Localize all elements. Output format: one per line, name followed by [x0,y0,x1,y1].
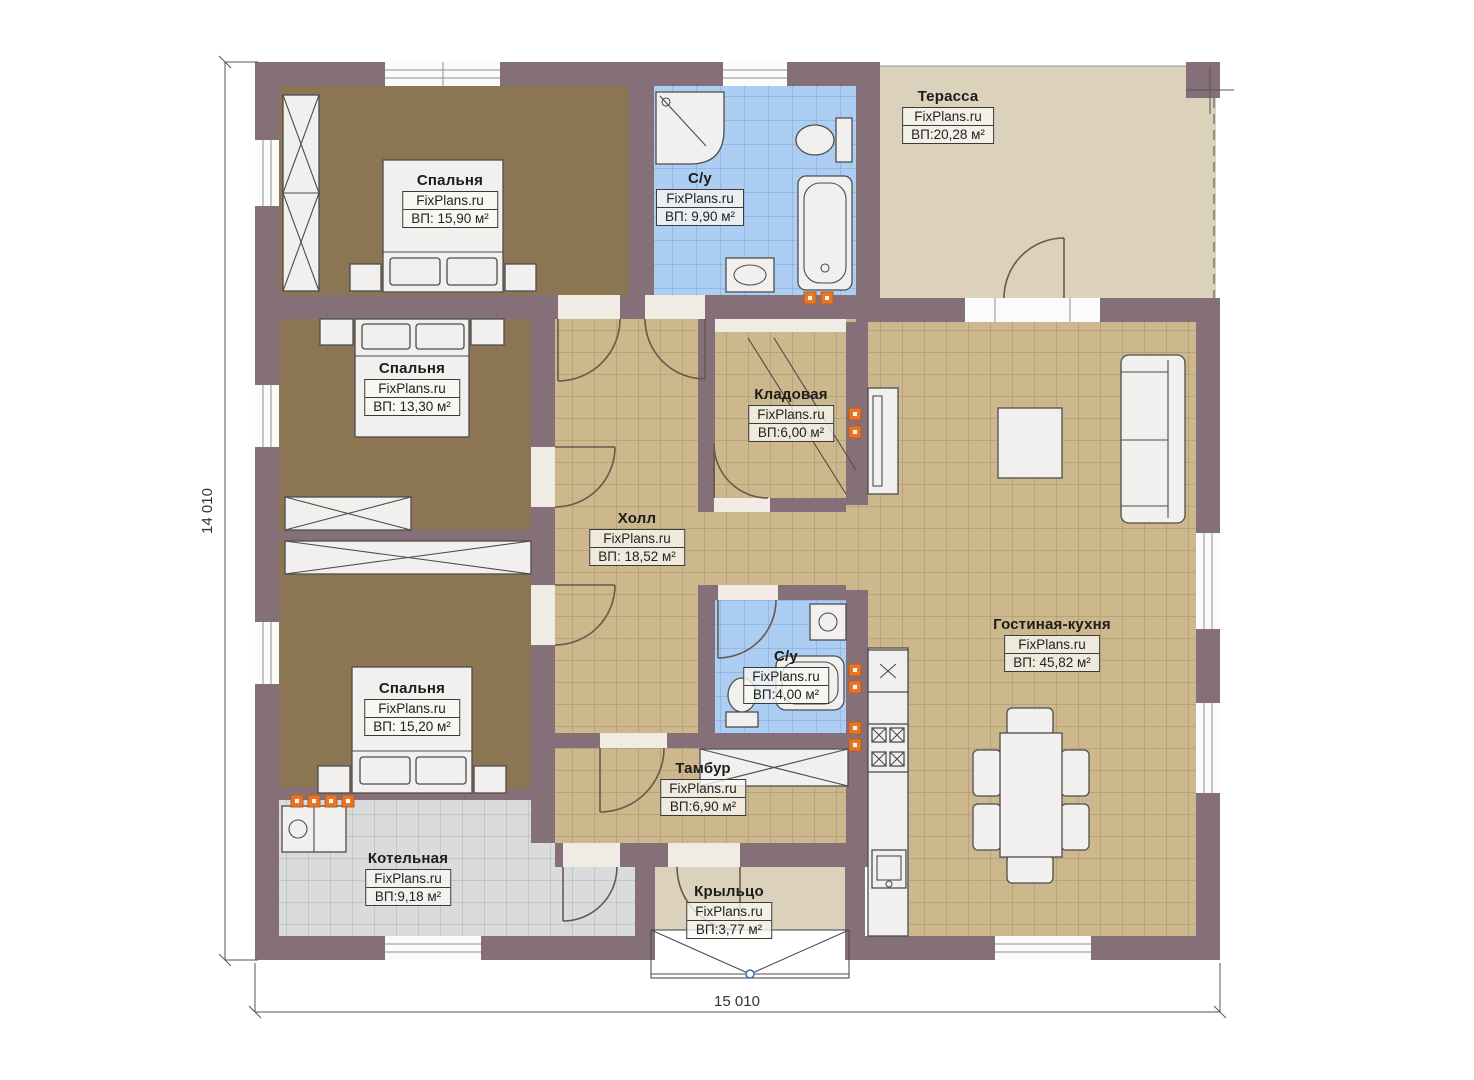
stove-icon [868,724,908,772]
room-area: ВП:3,77 м² [687,921,771,938]
room-name: Тамбур [660,760,746,777]
marker-icon [849,739,861,751]
room-area: ВП: 45,82 м² [1005,654,1099,671]
dimension-width-label: 15 010 [714,993,760,1010]
wall-pantry-left [698,319,715,512]
wardrobe-icon [285,497,411,530]
marker-icon [849,426,861,438]
window [255,622,279,684]
nightstand-icon [474,766,506,793]
room-name: Кладовая [748,386,834,403]
room-name: Спальня [402,172,498,189]
wall-porch-left [635,867,655,960]
window [723,62,787,86]
opening-bedroom1 [558,295,620,319]
sofa-icon [1121,355,1185,523]
room-area: ВП: 18,52 м² [590,548,684,565]
room-info-box: FixPlans.ru ВП: 9,90 м² [656,189,744,226]
marker-icon [342,795,354,807]
terrace-corner-post [1186,62,1220,98]
opening-hall-living [846,505,868,590]
room-area: ВП: 9,90 м² [657,208,743,225]
marker-icon [325,795,337,807]
wall-bath-terrace [856,62,880,322]
room-watermark: FixPlans.ru [744,668,828,686]
nightstand-icon [318,766,350,793]
nightstand-icon [505,264,536,291]
room-label-bathroom-main: С/у FixPlans.ru ВП: 9,90 м² [656,170,744,226]
room-name: Спальня [364,680,460,697]
room-info-box: FixPlans.ru ВП:4,00 м² [743,667,829,704]
room-area: ВП: 13,30 м² [365,398,459,415]
window [995,936,1091,960]
chair-icon [1061,750,1089,796]
room-area: ВП:20,28 м² [903,126,993,143]
opening-pantry [714,498,770,512]
room-watermark: FixPlans.ru [590,530,684,548]
window [1196,703,1220,793]
room-area: ВП:6,90 м² [661,798,745,815]
room-watermark: FixPlans.ru [687,903,771,921]
chair-icon [973,750,1001,796]
chair-icon [973,804,1001,850]
room-info-box: FixPlans.ru ВП: 45,82 м² [1004,635,1100,672]
room-watermark: FixPlans.ru [661,780,745,798]
boiler-sink-icon [282,806,346,852]
dimension-height-label: 14 010 [199,488,216,534]
sink-icon [726,258,774,292]
room-label-bedroom-3: Спальня FixPlans.ru ВП: 15,20 м² [364,680,460,736]
room-name: Холл [589,510,685,527]
nightstand-icon [471,319,504,345]
room-label-bedroom-1: Спальня FixPlans.ru ВП: 15,90 м² [402,172,498,228]
wall-wc-left [698,600,715,748]
tv-cabinet-icon [868,388,898,494]
room-watermark: FixPlans.ru [365,380,459,398]
room-info-box: FixPlans.ru ВП:3,77 м² [686,902,772,939]
wall-bed1-bath [628,62,654,295]
floor-plan-page: 14 010 15 010 Спальня FixPlans.ru ВП: 15… [0,0,1474,1080]
room-area: ВП:6,00 м² [749,424,833,441]
room-name: Терасса [902,88,994,105]
room-label-bedroom-2: Спальня FixPlans.ru ВП: 13,30 м² [364,360,460,416]
room-watermark: FixPlans.ru [366,870,450,888]
room-name: С/у [743,648,829,665]
opening-wc [718,585,778,600]
marker-icon [804,292,816,304]
chair-icon [1061,804,1089,850]
opening-boiler [563,843,620,867]
room-name: С/у [656,170,744,187]
room-label-living-kitchen: Гостиная-кухня FixPlans.ru ВП: 45,82 м² [993,616,1111,672]
nightstand-icon [350,264,381,291]
room-name: Котельная [365,850,451,867]
room-label-porch: Крыльцо FixPlans.ru ВП:3,77 м² [686,883,772,939]
window [255,385,279,447]
room-label-bathroom-small: С/у FixPlans.ru ВП:4,00 м² [743,648,829,704]
marker-icon [821,292,833,304]
room-watermark: FixPlans.ru [657,190,743,208]
bathtub-icon [798,176,852,290]
wall-right [1196,322,1220,960]
marker-icon [291,795,303,807]
room-info-box: FixPlans.ru ВП:6,90 м² [660,779,746,816]
room-watermark: FixPlans.ru [903,108,993,126]
washing-machine-icon [810,604,846,640]
room-area: ВП:9,18 м² [366,888,450,905]
room-info-box: FixPlans.ru ВП:20,28 м² [902,107,994,144]
kitchen-sink-icon [872,850,906,888]
marker-icon [849,681,861,693]
room-info-box: FixPlans.ru ВП: 18,52 м² [589,529,685,566]
kitchen-counter [868,648,908,936]
room-watermark: FixPlans.ru [1005,636,1099,654]
opening-terrace-door [965,298,1100,322]
wardrobe-icon [283,95,319,291]
room-name: Спальня [364,360,460,377]
room-watermark: FixPlans.ru [365,700,459,718]
wall-porch-right [845,867,865,960]
marker-icon [308,795,320,807]
room-info-box: FixPlans.ru ВП:6,00 м² [748,405,834,442]
room-label-terrace: Терасса FixPlans.ru ВП:20,28 м² [902,88,994,144]
room-label-pantry: Кладовая FixPlans.ru ВП:6,00 м² [748,386,834,442]
room-info-box: FixPlans.ru ВП: 15,90 м² [402,191,498,228]
room-info-box: FixPlans.ru ВП: 13,30 м² [364,379,460,416]
opening-bedroom3 [531,585,555,645]
chair-icon [1007,708,1053,736]
chair-icon [1007,855,1053,883]
room-area: ВП: 15,20 м² [365,718,459,735]
window [385,62,500,86]
room-info-box: FixPlans.ru ВП:9,18 м² [365,869,451,906]
room-label-vestibule: Тамбур FixPlans.ru ВП:6,90 м² [660,760,746,816]
room-label-boiler-room: Котельная FixPlans.ru ВП:9,18 м² [365,850,451,906]
opening-porch [668,843,740,867]
shower-icon [656,92,724,164]
room-area: ВП: 15,90 м² [403,210,497,227]
marker-icon [849,664,861,676]
window [385,936,481,960]
wall-bedrooms-hall [531,295,555,843]
coffee-table-icon [998,408,1062,478]
marker-icon [849,408,861,420]
room-name: Гостиная-кухня [993,616,1111,633]
room-area: ВП:4,00 м² [744,686,828,703]
room-name: Крыльцо [686,883,772,900]
room-watermark: FixPlans.ru [749,406,833,424]
opening-bedroom2 [531,447,555,507]
room-label-hall: Холл FixPlans.ru ВП: 18,52 м² [589,510,685,566]
room-info-box: FixPlans.ru ВП: 15,20 м² [364,699,460,736]
nightstand-icon [320,319,353,345]
opening-hall-vestibule [600,733,667,748]
window [1196,533,1220,629]
wall-bed2-bed3 [279,530,531,540]
room-watermark: FixPlans.ru [403,192,497,210]
window [255,140,279,206]
wardrobe-icon [285,541,531,574]
opening-bath-main [645,295,705,319]
marker-icon [849,722,861,734]
